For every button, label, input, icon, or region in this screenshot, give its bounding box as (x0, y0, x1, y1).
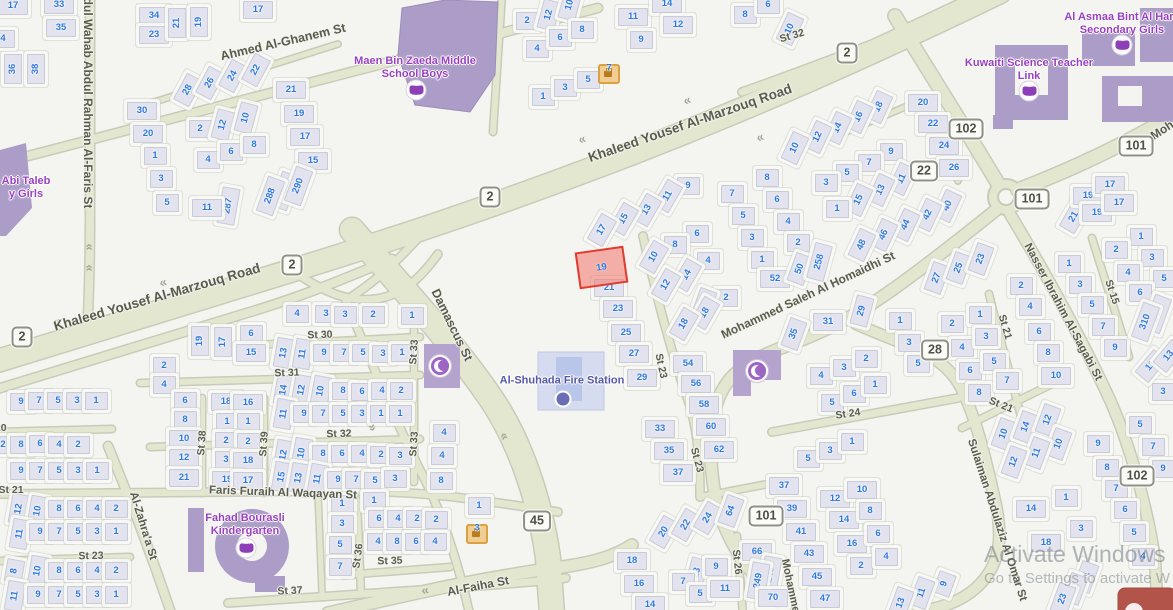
building-parcel: 3 (334, 306, 357, 324)
building-number: 66 (752, 547, 763, 557)
building-number: 8 (394, 537, 399, 547)
one-way-arrow-icon: « (84, 264, 97, 271)
building-parcel: 3 (741, 229, 764, 247)
building-number: 17 (1114, 198, 1125, 208)
building-number: 8 (1104, 463, 1109, 473)
building-number: 1 (977, 310, 982, 320)
building-number: 37 (779, 481, 790, 491)
poi-label-line: Kindergarten (205, 525, 284, 538)
building-parcel: 3 (331, 515, 354, 533)
building-parcel: 21 (276, 81, 306, 99)
building-parcel: 7 (1092, 318, 1115, 336)
building-parcel: 6 (867, 525, 890, 543)
street-label: St 32 (326, 428, 352, 441)
building-parcel: 1 (105, 523, 128, 541)
building-parcel: 8 (243, 136, 266, 154)
building-number: 18 (698, 306, 712, 320)
poi-label[interactable]: Fahad BourasliKindergarten (205, 512, 284, 538)
building-number: 5 (56, 466, 61, 476)
building-number: 10 (296, 447, 307, 459)
building-number: 5 (805, 454, 810, 464)
building-number: 3 (1077, 280, 1082, 290)
building-parcel: 14 (829, 511, 859, 529)
building-number: 6 (774, 195, 779, 205)
building-number: 6 (376, 514, 381, 524)
building-number: 11 (312, 473, 323, 485)
street-label: St 21 (0, 484, 24, 496)
building-parcel: 5 (983, 353, 1006, 371)
building-parcel: 12 (820, 490, 850, 508)
building-number: 2 (113, 566, 118, 576)
building-number: 3 (339, 519, 344, 529)
mosque-crescent-icon[interactable] (748, 362, 766, 380)
building-number: 8 (438, 476, 443, 486)
building-number: 18 (872, 100, 885, 114)
building-number: 4 (375, 537, 380, 547)
building-number: 6 (228, 147, 233, 157)
building-parcel: 30 (127, 102, 157, 120)
building-parcel: 24 (929, 137, 959, 155)
building-number: 42 (921, 208, 934, 222)
building-number: 15 (308, 156, 319, 166)
route-shield: 101 (1119, 136, 1154, 157)
building-number: 5 (337, 540, 342, 550)
building-number: 2 (378, 450, 383, 460)
building-number: 3 (158, 174, 163, 184)
building-number: 8 (340, 386, 345, 396)
poi-label[interactable]: Maen Bin Zaeda MiddleSchool Boys (354, 55, 476, 81)
building-parcel: 6 (220, 143, 243, 161)
poi-label-line: Al Asmaa Bint Al Hare (1064, 11, 1173, 24)
building-number: 12 (217, 119, 229, 132)
building-number: 6 (1137, 288, 1142, 298)
building-number: 6 (182, 396, 187, 406)
building-parcel: 17 (1104, 194, 1134, 212)
building-number: 26 (949, 163, 960, 173)
building-number: 6 (359, 387, 364, 397)
building-number: 290 (291, 177, 305, 195)
building-number: 16 (852, 110, 865, 124)
building-parcel: 4 (1019, 298, 1042, 316)
building-parcel: 2 (855, 350, 878, 368)
building-number: 10 (1051, 371, 1062, 381)
building-number: 10 (788, 141, 801, 155)
building-number: 24 (939, 141, 950, 151)
building-parcel: 1 (389, 405, 412, 423)
windows-activation-watermark-sub: Go to Settings to activate W (984, 570, 1170, 587)
building-number: 7 (680, 577, 685, 587)
school-book-icon[interactable] (407, 81, 426, 100)
building-number: 35 (56, 23, 67, 33)
poi-label-line: School Boys (354, 68, 476, 81)
building-parcel: 23 (139, 26, 169, 44)
building-parcel: 2 (1105, 241, 1128, 259)
building-number: 35 (788, 327, 801, 340)
building-parcel: 3 (975, 328, 998, 346)
building-number: 8 (251, 140, 256, 150)
building-number: 2 (723, 293, 728, 303)
building-parcel: 20 (908, 94, 938, 112)
building-parcel: 1 (889, 312, 912, 330)
building-number: 56 (691, 379, 702, 389)
building-number: 2 (398, 386, 403, 396)
highlighted-parcel[interactable]: 19 (575, 246, 629, 289)
building-number: 35 (664, 446, 675, 456)
route-shield: 101 (1015, 189, 1050, 210)
building-parcel: 18 (617, 552, 647, 570)
route-shield: 28 (921, 340, 949, 361)
building-parcel: 8 (430, 472, 453, 490)
building-number: 4 (441, 428, 446, 438)
building-parcel: 9 (27, 586, 50, 604)
building-number: 11 (916, 587, 928, 600)
route-shield: 22 (910, 161, 938, 182)
building-parcel: 41 (786, 523, 816, 541)
building-number: 14 (662, 0, 673, 9)
route-shield: 45 (523, 511, 551, 532)
building-number: 9 (1095, 439, 1100, 449)
building-number: 13 (874, 183, 887, 197)
poi-label-line: Fahad Bourasli (205, 512, 284, 525)
building-number: 7 (866, 158, 871, 168)
building-parcel: 5 (1153, 270, 1173, 288)
building-number: 7 (56, 527, 61, 537)
building-number: 1 (540, 92, 545, 102)
building-number: 6 (875, 529, 880, 539)
building-parcel: 4 (424, 533, 447, 551)
building-parcel: 11 (618, 8, 648, 26)
building-number: 3 (94, 527, 99, 537)
route-shield: 102 (949, 119, 984, 140)
building-parcel: 7 (329, 558, 352, 576)
building-number: 8 (18, 440, 23, 450)
building-parcel: 35 (654, 442, 684, 460)
building-number: 29 (637, 373, 648, 383)
building-number: 7 (37, 466, 42, 476)
building-number: 33 (54, 0, 65, 10)
building-number: 5 (740, 211, 745, 221)
building-parcel: 6 (240, 325, 263, 343)
fire-station-icon[interactable] (557, 393, 570, 406)
building-parcel: 1 (841, 433, 864, 451)
building-number: 7 (729, 189, 734, 199)
building-number: 3 (823, 178, 828, 188)
building-number: 19 (194, 17, 204, 28)
building-number: 4 (294, 309, 299, 319)
building-parcel: 8 (756, 169, 779, 187)
poi-label[interactable]: Al Asmaa Bint Al HareSecondary Girls (1064, 11, 1173, 37)
building-number: 8 (742, 10, 747, 20)
building-parcel: 2 (105, 500, 128, 518)
building-number: 5 (75, 590, 80, 600)
building-parcel: 1 (401, 307, 424, 325)
building-number: 6 (339, 449, 344, 459)
building-number: 3 (749, 233, 754, 243)
building-number: 17 (243, 476, 254, 486)
building-parcel: 6 (843, 385, 866, 403)
building-number: 17 (1105, 180, 1116, 190)
building-parcel: 8 (571, 21, 594, 39)
building-number: 2 (370, 310, 375, 320)
building-number: 36 (8, 64, 18, 75)
building-number: 15 (246, 348, 257, 358)
building-parcel: 19 (284, 105, 314, 123)
building-number: 19 (1092, 208, 1103, 218)
building-number: 3 (474, 523, 479, 534)
building-number: 9 (1160, 464, 1165, 474)
building-parcel: 5 (689, 585, 712, 603)
building-number: 3 (380, 349, 385, 359)
building-number: 18 (677, 317, 691, 331)
building-parcel: 1 (468, 497, 491, 515)
building-number: 4 (785, 217, 790, 227)
poi-label-line: Al-Shuhada Fire Station (500, 374, 625, 387)
building-parcel: 6 (686, 225, 709, 243)
building-number: 41 (796, 527, 807, 537)
school-book-icon[interactable] (1020, 82, 1039, 101)
building-number: 12 (673, 20, 684, 30)
one-way-arrow-icon: « (84, 243, 97, 250)
building-number: 2 (863, 354, 868, 364)
building-parcel: 1 (1130, 228, 1153, 246)
building-parcel: 2 (941, 315, 964, 333)
building-number: 5 (360, 348, 365, 358)
building-number: 18 (243, 456, 254, 466)
building-parcel: 20 (133, 125, 163, 143)
school-book-icon[interactable] (237, 539, 256, 558)
building-number: 11 (661, 189, 674, 202)
map-canvas[interactable]: 1733343523211917363842826242230201321210… (0, 0, 1173, 610)
building-number: 33 (655, 424, 666, 434)
building-number: 6 (765, 0, 770, 10)
building-number: 25 (953, 261, 966, 274)
building-number: 3 (342, 310, 347, 320)
building-number: 8 (764, 173, 769, 183)
building-parcel: 17 (1095, 176, 1125, 194)
building-number: 3 (906, 338, 911, 348)
building-number: 12 (830, 494, 841, 504)
building-parcel: 5 (797, 450, 820, 468)
building-parcel: 19 (190, 7, 208, 37)
building-parcel: 6 (1028, 323, 1051, 341)
building-parcel: 4 (526, 40, 549, 58)
building-number: 4 (56, 440, 61, 450)
building-parcel: 3 (898, 334, 921, 352)
building-number: 29 (856, 305, 868, 318)
building-parcel: 6 (757, 0, 780, 14)
building-parcel: 6 (174, 392, 197, 410)
building-number: 1 (371, 496, 376, 506)
street-label: St 33 (407, 431, 421, 457)
building-number: 13 (1162, 349, 1173, 363)
building-parcel: 38 (27, 54, 45, 84)
building-parcel: 22 (918, 115, 948, 133)
building-number: 6 (75, 504, 80, 514)
building-number: 54 (683, 359, 694, 369)
poi-label[interactable]: Al-Shuhada Fire Station (500, 374, 625, 387)
building-parcel: 5 (1123, 524, 1146, 542)
building-number: 10 (647, 250, 661, 264)
poi-label[interactable]: Kuwaiti Science TeacherLink (965, 57, 1093, 83)
building-number: 11 (14, 528, 25, 540)
poi-label[interactable]: Abi Taleby Girls (2, 175, 51, 201)
building-number: 12 (1042, 413, 1055, 426)
building-number: 12 (543, 9, 555, 22)
building-number: 2 (161, 361, 166, 371)
route-shield: 101 (749, 506, 784, 527)
building-number: 1 (93, 396, 98, 406)
building-parcel: 9 (705, 558, 728, 576)
building-number: 11 (896, 172, 909, 185)
building-number: 18 (221, 397, 232, 407)
building-number: 7 (1100, 322, 1105, 332)
building-number: 10 (32, 505, 43, 517)
building-parcel: 9 (630, 31, 653, 49)
building-number: 1 (94, 466, 99, 476)
building-number: 5 (372, 476, 377, 486)
building-number: 8 (867, 506, 872, 516)
building-number: 4 (432, 537, 437, 547)
building-parcel: 34 (139, 7, 169, 25)
building-number: 1 (759, 255, 764, 265)
building-parcel: 17 (290, 128, 320, 146)
building-number: 2 (414, 514, 419, 524)
building-parcel: 16 (837, 535, 867, 553)
building-parcel: 6 (1114, 501, 1137, 519)
building-number: 8 (579, 25, 584, 35)
building-number: 47 (820, 594, 831, 604)
building-parcel: 4 (951, 339, 974, 357)
building-number: 5 (991, 357, 996, 367)
building-parcel: 7 (1142, 438, 1165, 456)
building-number: 22 (249, 63, 262, 77)
building-parcel: 6 (1129, 284, 1152, 302)
building-number: 288 (263, 187, 277, 205)
building-number: 8 (182, 415, 187, 425)
building-number: 26 (203, 76, 216, 90)
building-number: 14 (278, 384, 289, 396)
building-parcel: 4 (777, 213, 800, 231)
building-number: 23 (613, 304, 624, 314)
building-number: 9 (888, 147, 893, 157)
building-number: 25 (621, 328, 632, 338)
building-parcel: 43 (794, 545, 824, 563)
building-number: 3 (359, 409, 364, 419)
building-number: 20 (918, 98, 929, 108)
building-number: 2 (1113, 245, 1118, 255)
building-number: 17 (300, 132, 311, 142)
building-number: 6 (1122, 505, 1127, 515)
building-parcel: 2 (850, 557, 873, 575)
building-number: 31 (823, 317, 834, 327)
street-label: St 20 (0, 422, 7, 434)
building-number: 7 (1004, 376, 1009, 386)
building-number: 16 (634, 579, 645, 589)
building-number: 4 (1027, 302, 1032, 312)
building-number: 34 (149, 11, 160, 21)
building-number: 1 (1066, 259, 1071, 269)
building-number: 43 (804, 549, 815, 559)
building-number: 5 (829, 398, 834, 408)
building-number: 7 (1150, 442, 1155, 452)
building-parcel: 1 (105, 586, 128, 604)
building-parcel: 3 (1069, 276, 1092, 294)
street-label: Abdul Wahab Abdul Rahman Al-Faris St (81, 0, 95, 208)
building-number: 17 (8, 1, 19, 11)
building-number: 10 (857, 485, 868, 495)
building-parcel: 5 (836, 164, 859, 182)
building-number: 17 (595, 223, 609, 237)
building-parcel: 21 (168, 8, 186, 38)
building-number: 3 (1160, 387, 1165, 397)
school-book-icon[interactable] (1113, 36, 1132, 55)
building-number: 18 (627, 556, 638, 566)
building-parcel: 14 (635, 596, 665, 610)
route-shield: 102 (1120, 466, 1155, 487)
building-number: 24 (226, 69, 239, 83)
building-number: 12 (1008, 455, 1021, 468)
building-number: 30 (137, 106, 148, 116)
building-number: 23 (149, 30, 160, 40)
building-number: 10 (564, 0, 576, 11)
building-number: 3 (562, 83, 567, 93)
building-number: 258 (812, 253, 825, 271)
building-parcel: 8 (968, 384, 991, 402)
building-number: 1 (245, 417, 250, 427)
windows-activation-watermark: Activate Windows (984, 541, 1166, 568)
building-number: 5 (1131, 528, 1136, 538)
building-number: 37 (673, 468, 684, 478)
building-number: 9 (18, 397, 23, 407)
building-parcel: 3 (150, 170, 173, 188)
building-number: 249 (752, 572, 764, 589)
building-number: 5 (844, 168, 849, 178)
building-parcel: 1 (1055, 489, 1078, 507)
building-number: 5 (1137, 420, 1142, 430)
building-number: 8 (56, 566, 61, 576)
building-number: 13 (293, 472, 304, 484)
building-number: 19 (195, 336, 205, 347)
building-parcel: 2 (105, 562, 128, 580)
building-number: 2 (795, 238, 800, 248)
building-number: 5 (585, 75, 590, 85)
building-number: 10 (32, 565, 43, 577)
building-number: 17 (253, 5, 264, 15)
route-shield: 2 (282, 255, 303, 276)
building-number: 44 (899, 218, 912, 232)
route-shield: 2 (480, 187, 501, 208)
building-number: 1 (113, 590, 118, 600)
building-parcel: 23 (603, 300, 633, 318)
route-shield: 2 (837, 43, 858, 64)
building-parcel: 7 (996, 372, 1019, 390)
mosque-crescent-icon[interactable] (431, 357, 449, 375)
building-parcel: 27 (619, 345, 649, 363)
building-number: 12 (179, 453, 190, 463)
poi-label-line: Abi Taleb (2, 175, 51, 188)
building-number: 7 (1113, 484, 1118, 494)
building-number: 3 (323, 309, 328, 319)
building-parcel: 1 (237, 413, 260, 431)
building-parcel: 2 (215, 432, 238, 450)
building-parcel: 6 (549, 29, 572, 47)
building-parcel: 2 (1010, 277, 1033, 295)
building-number: 14 (839, 515, 850, 525)
building-number: 7 (56, 590, 61, 600)
building-number: 15 (852, 193, 865, 207)
building-number: 12 (659, 278, 673, 292)
building-number: 3 (1078, 524, 1083, 534)
